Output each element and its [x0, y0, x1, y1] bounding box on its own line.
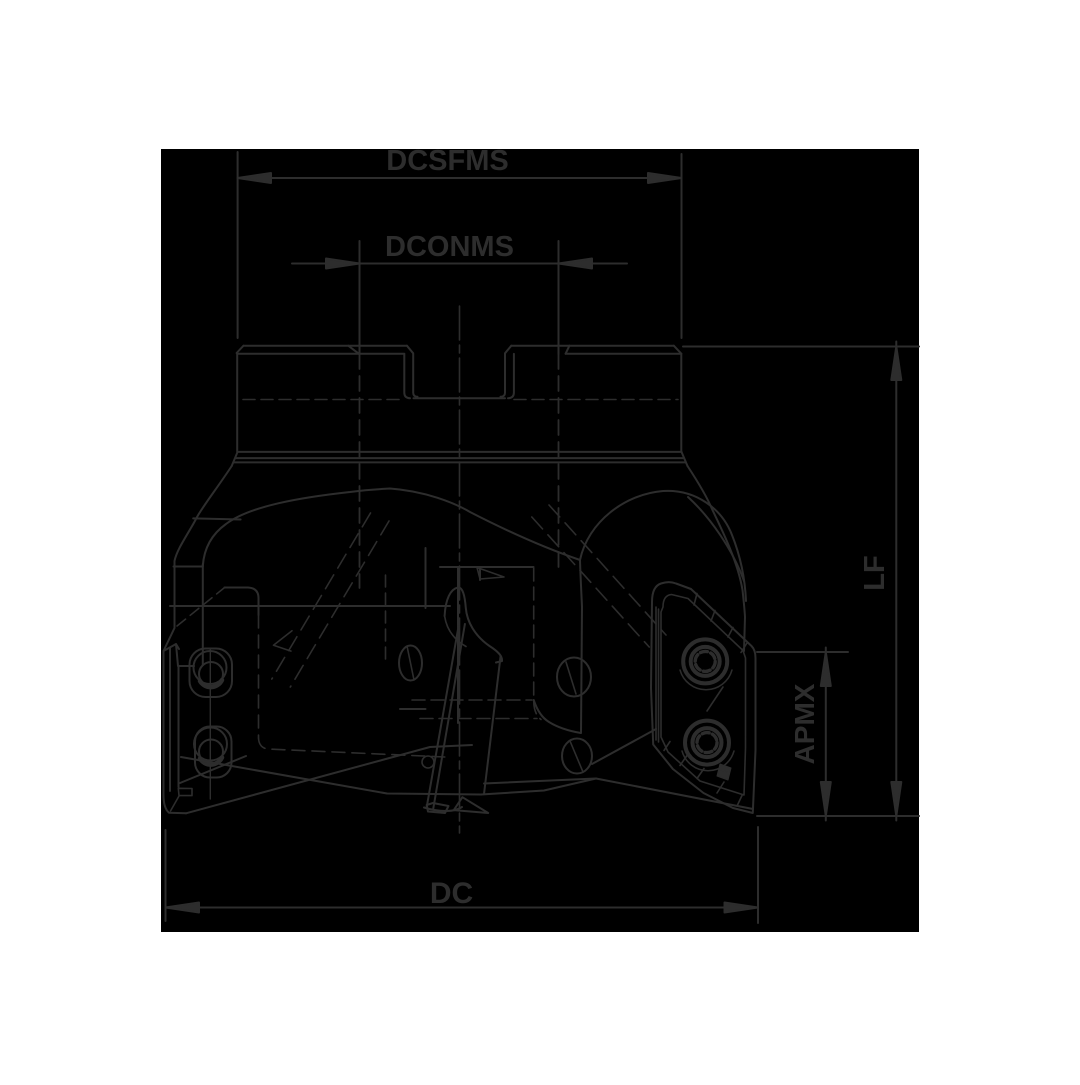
svg-text:LF: LF — [859, 555, 891, 590]
svg-text:DC: DC — [430, 877, 473, 910]
svg-text:DCONMS: DCONMS — [385, 231, 514, 263]
svg-text:APMX: APMX — [789, 683, 820, 764]
svg-text:DCSFMS: DCSFMS — [386, 145, 508, 177]
